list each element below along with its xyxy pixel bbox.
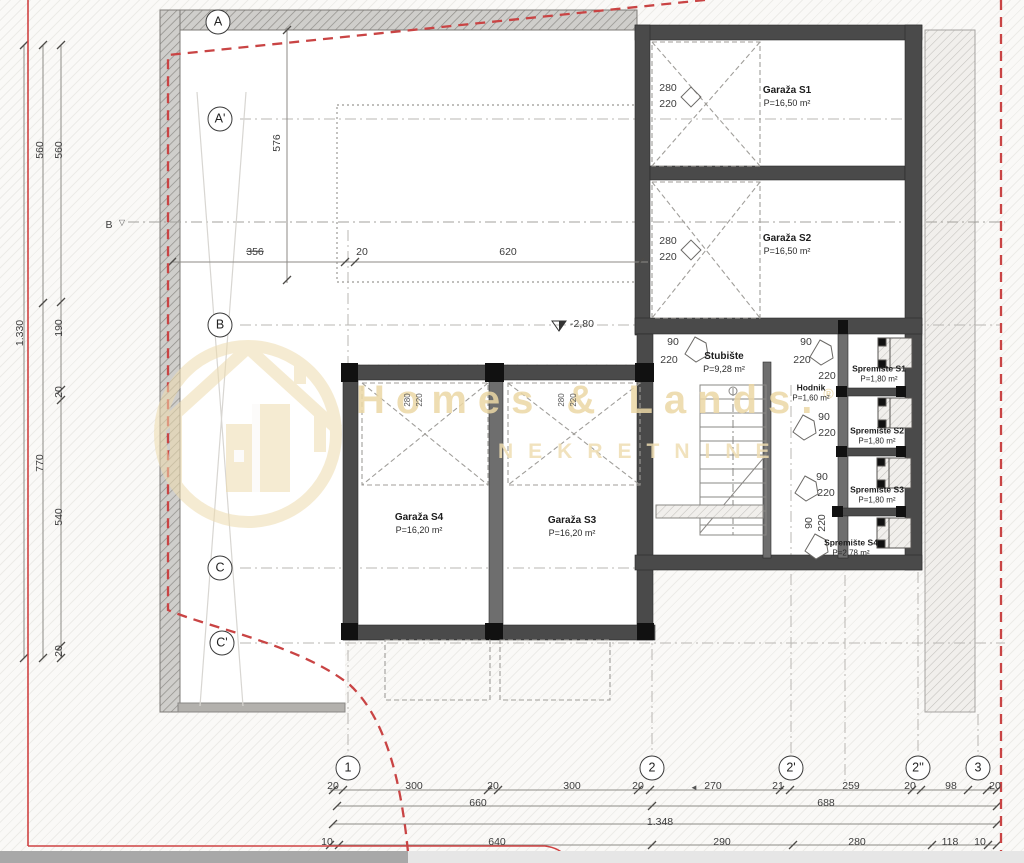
grid-bubble-C: C	[208, 556, 233, 581]
room-name: Garaža S3	[548, 515, 596, 528]
room-name: Garaža S1	[763, 85, 811, 98]
dimension-label: 90	[667, 337, 679, 348]
dimension-label: 1.330	[15, 320, 26, 346]
dimension-label: B	[105, 220, 112, 231]
room-area: P=1,80 m²	[850, 436, 904, 446]
grid-bubble-3: 3	[966, 756, 991, 781]
watermark-logo	[148, 332, 348, 532]
dimension-label: 270	[704, 781, 722, 792]
room-area: P=16,20 m²	[395, 525, 443, 536]
dimension-label: 280	[404, 393, 412, 406]
dimension-label: 280	[558, 393, 566, 406]
room-area: P=1,80 m²	[850, 495, 904, 505]
dimension-label: 90	[804, 517, 815, 529]
grid-bubble-B: B	[208, 313, 233, 338]
horizontal-scrollbar-track[interactable]	[0, 851, 1024, 863]
dimension-label: 20	[356, 247, 368, 258]
dimension-label: 118	[942, 837, 959, 848]
dimension-label: 220	[793, 355, 811, 366]
dimension-label: 540	[54, 508, 65, 526]
room-area: P=2,78 m²	[824, 548, 878, 558]
dimension-label: 98	[945, 781, 957, 792]
dimension-label: 560	[54, 141, 65, 159]
dimension-label: 20	[632, 781, 644, 792]
room-label: Spremište S2P=1,80 m²	[850, 426, 904, 447]
dimension-label: 290	[713, 837, 731, 848]
dimension-label: 20	[904, 781, 916, 792]
grid-bubble-1: 1	[336, 756, 361, 781]
watermark-title: Homes & Lands.®	[356, 378, 834, 423]
room-name: Hodnik	[792, 383, 829, 394]
dimension-label: 280	[659, 83, 677, 94]
dimension-label: 190	[54, 319, 65, 337]
room-label: Spremište S3P=1,80 m²	[850, 485, 904, 506]
dimension-label: 300	[405, 781, 423, 792]
dimension-label: 90	[818, 412, 830, 423]
dimension-label: 20	[54, 645, 65, 657]
dimension-label: 220	[416, 393, 424, 406]
room-name: Stubište	[703, 351, 745, 364]
dimension-label: 10	[974, 837, 986, 848]
room-label: StubišteP=9,28 m²	[703, 351, 745, 375]
dimension-label: 356	[246, 247, 264, 258]
room-label: Garaža S2P=16,50 m²	[763, 233, 811, 257]
dimension-label: 620	[499, 247, 517, 258]
dimension-label: 280	[848, 837, 866, 848]
room-area: P=16,50 m²	[763, 246, 811, 257]
dimension-label: 560	[35, 141, 46, 159]
room-label: Garaža S1P=16,50 m²	[763, 85, 811, 109]
room-name: Spremište S4	[824, 538, 878, 549]
room-area: P=1,60 m²	[792, 393, 829, 403]
dimension-label: 20	[54, 386, 65, 398]
dimension-label: 21	[772, 781, 784, 792]
grid-bubble-Ap: A'	[208, 107, 233, 132]
dimension-label: 280	[659, 236, 677, 247]
room-label: Spremište S4P=2,78 m²	[824, 538, 878, 559]
dimension-label: 220	[660, 355, 678, 366]
dimension-label: 220	[818, 371, 836, 382]
room-name: Garaža S2	[763, 233, 811, 246]
room-name: Garaža S4	[395, 512, 443, 525]
dimension-label: ◄	[690, 784, 698, 792]
dimension-label: ▽	[119, 219, 125, 227]
grid-bubble-2pp: 2''	[906, 756, 931, 781]
room-area: P=9,28 m²	[703, 364, 745, 375]
room-label: Garaža S4P=16,20 m²	[395, 512, 443, 536]
room-area: P=16,50 m²	[763, 98, 811, 109]
grid-bubble-A: A	[206, 10, 231, 35]
floor-plan-canvas: Homes & Lands.® NEKRETNINE 2030020300202…	[0, 0, 1024, 863]
grid-bubble-2p: 2'	[779, 756, 804, 781]
right-terrain-band	[925, 30, 975, 712]
dimension-label: 10	[321, 837, 333, 848]
dimension-label: 20	[487, 781, 499, 792]
watermark-subtitle: NEKRETNINE	[498, 440, 785, 464]
room-area: P=16,20 m²	[548, 528, 596, 539]
dimension-label: 576	[272, 134, 283, 152]
dimension-label: 20	[327, 781, 339, 792]
dimension-label: 300	[563, 781, 581, 792]
dimension-label: 640	[488, 837, 506, 848]
room-name: Spremište S1	[852, 364, 906, 375]
grid-bubble-2: 2	[640, 756, 665, 781]
dimension-label: 90	[800, 337, 812, 348]
dimension-label: 90	[816, 472, 828, 483]
dimension-label: -2,80	[570, 319, 594, 330]
horizontal-scrollbar-thumb[interactable]	[0, 851, 408, 863]
dimension-label: 770	[35, 454, 46, 472]
dimension-label: 259	[842, 781, 860, 792]
dimension-label: 220	[817, 488, 835, 499]
room-label: Garaža S3P=16,20 m²	[548, 515, 596, 539]
room-name: Spremište S3	[850, 485, 904, 496]
dimension-label: 220	[659, 252, 677, 263]
room-label: Spremište S1P=1,80 m²	[852, 364, 906, 385]
dimension-label: 220	[817, 514, 828, 532]
dimension-label: 688	[817, 798, 835, 809]
dimension-label: 660	[469, 798, 487, 809]
dimension-label: 220	[659, 99, 677, 110]
dimension-label: 20	[989, 781, 1001, 792]
room-area: P=1,80 m²	[852, 374, 906, 384]
grid-bubble-Cp: C'	[210, 631, 235, 656]
dimension-label: 1.348	[647, 817, 673, 828]
dimension-label: 220	[570, 393, 578, 406]
room-name: Spremište S2	[850, 426, 904, 437]
room-label: HodnikP=1,60 m²	[792, 383, 829, 404]
dimension-label: 220	[818, 428, 836, 439]
